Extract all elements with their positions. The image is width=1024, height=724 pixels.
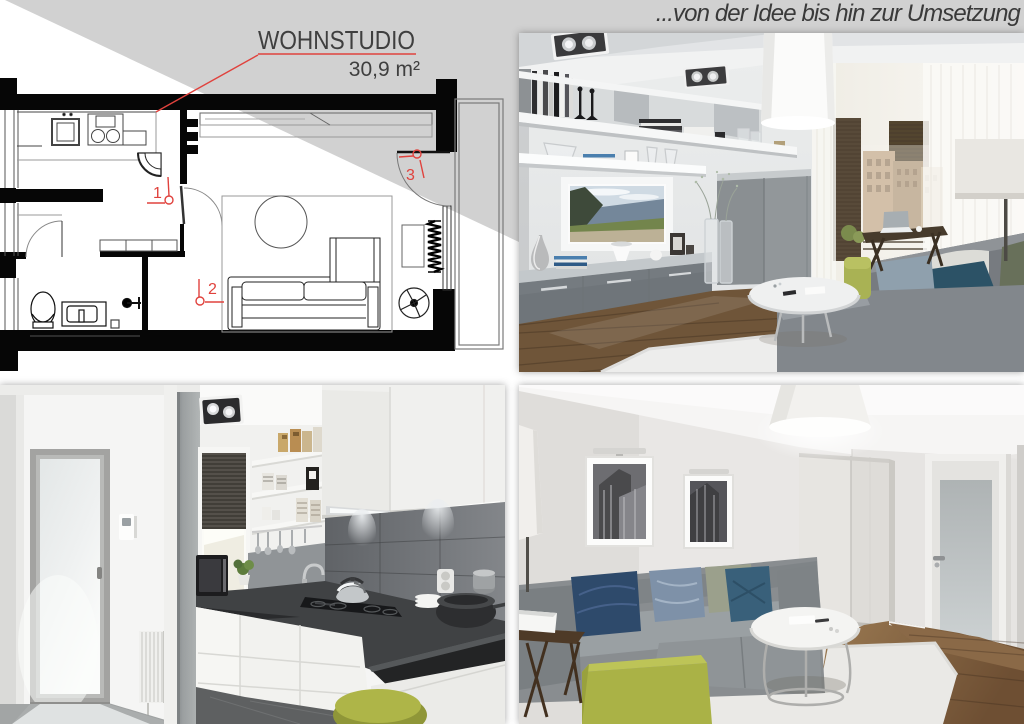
svg-text:1: 1 [153, 185, 162, 202]
svg-text:30,9 m²: 30,9 m² [349, 58, 420, 81]
svg-text:3: 3 [406, 167, 415, 184]
svg-text:2: 2 [208, 281, 217, 298]
svg-text:WOHNSTUDIO: WOHNSTUDIO [258, 25, 415, 55]
